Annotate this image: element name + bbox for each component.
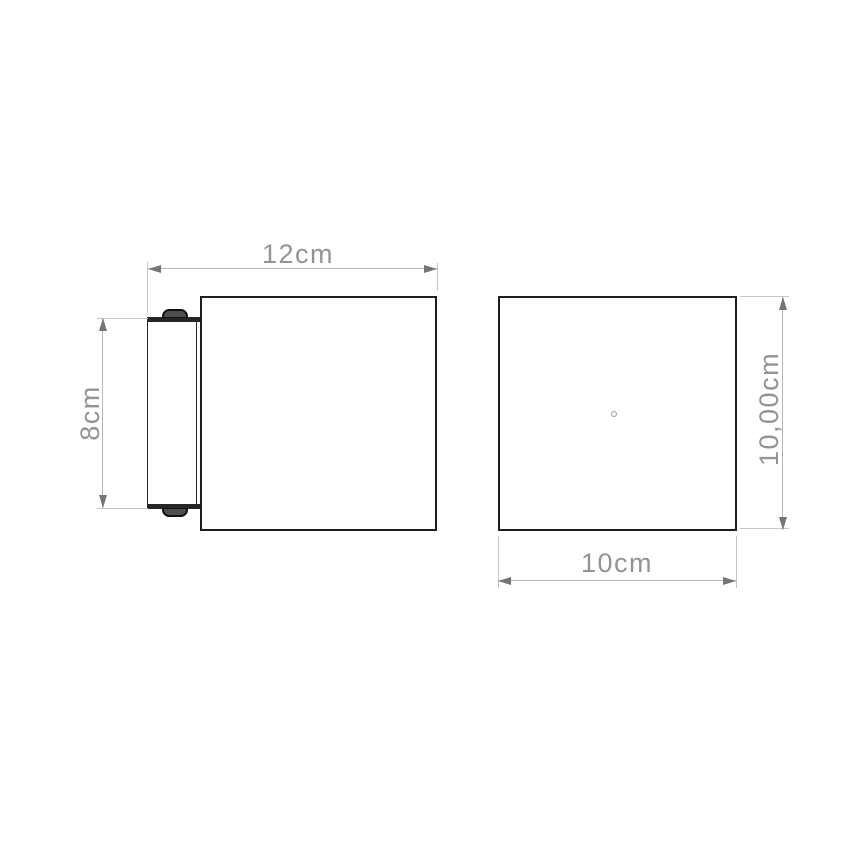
- front-center-mark: [611, 411, 617, 417]
- depth-arrow-left-icon: [148, 265, 161, 273]
- width-dimension-label: 10cm: [567, 550, 667, 576]
- bracket-extension-line-bottom: [97, 508, 148, 509]
- bracket-arrow-up-icon: [99, 318, 107, 331]
- width-dimension-line: [498, 580, 736, 581]
- width-arrow-left-icon: [498, 577, 511, 585]
- height-arrow-up-icon: [779, 297, 787, 310]
- front-view-body: [498, 296, 737, 531]
- height-dimension-label: 10,00cm: [756, 360, 782, 466]
- width-arrow-right-icon: [723, 577, 736, 585]
- side-view-body: [200, 296, 437, 531]
- bracket-screw-top: [162, 309, 188, 318]
- height-arrow-down-icon: [779, 517, 787, 530]
- depth-dimension-label: 12cm: [248, 241, 348, 267]
- depth-extension-line-right: [437, 263, 438, 291]
- mounting-bracket-plate: [147, 319, 197, 507]
- bracket-screw-bottom: [162, 508, 188, 517]
- bracket-dimension-label: 8cm: [77, 363, 103, 463]
- width-extension-line-right: [736, 536, 737, 588]
- dimension-drawing: 12cm 8cm 10,00cm 10cm: [0, 0, 868, 868]
- bracket-arrow-down-icon: [99, 495, 107, 508]
- depth-arrow-right-icon: [424, 265, 437, 273]
